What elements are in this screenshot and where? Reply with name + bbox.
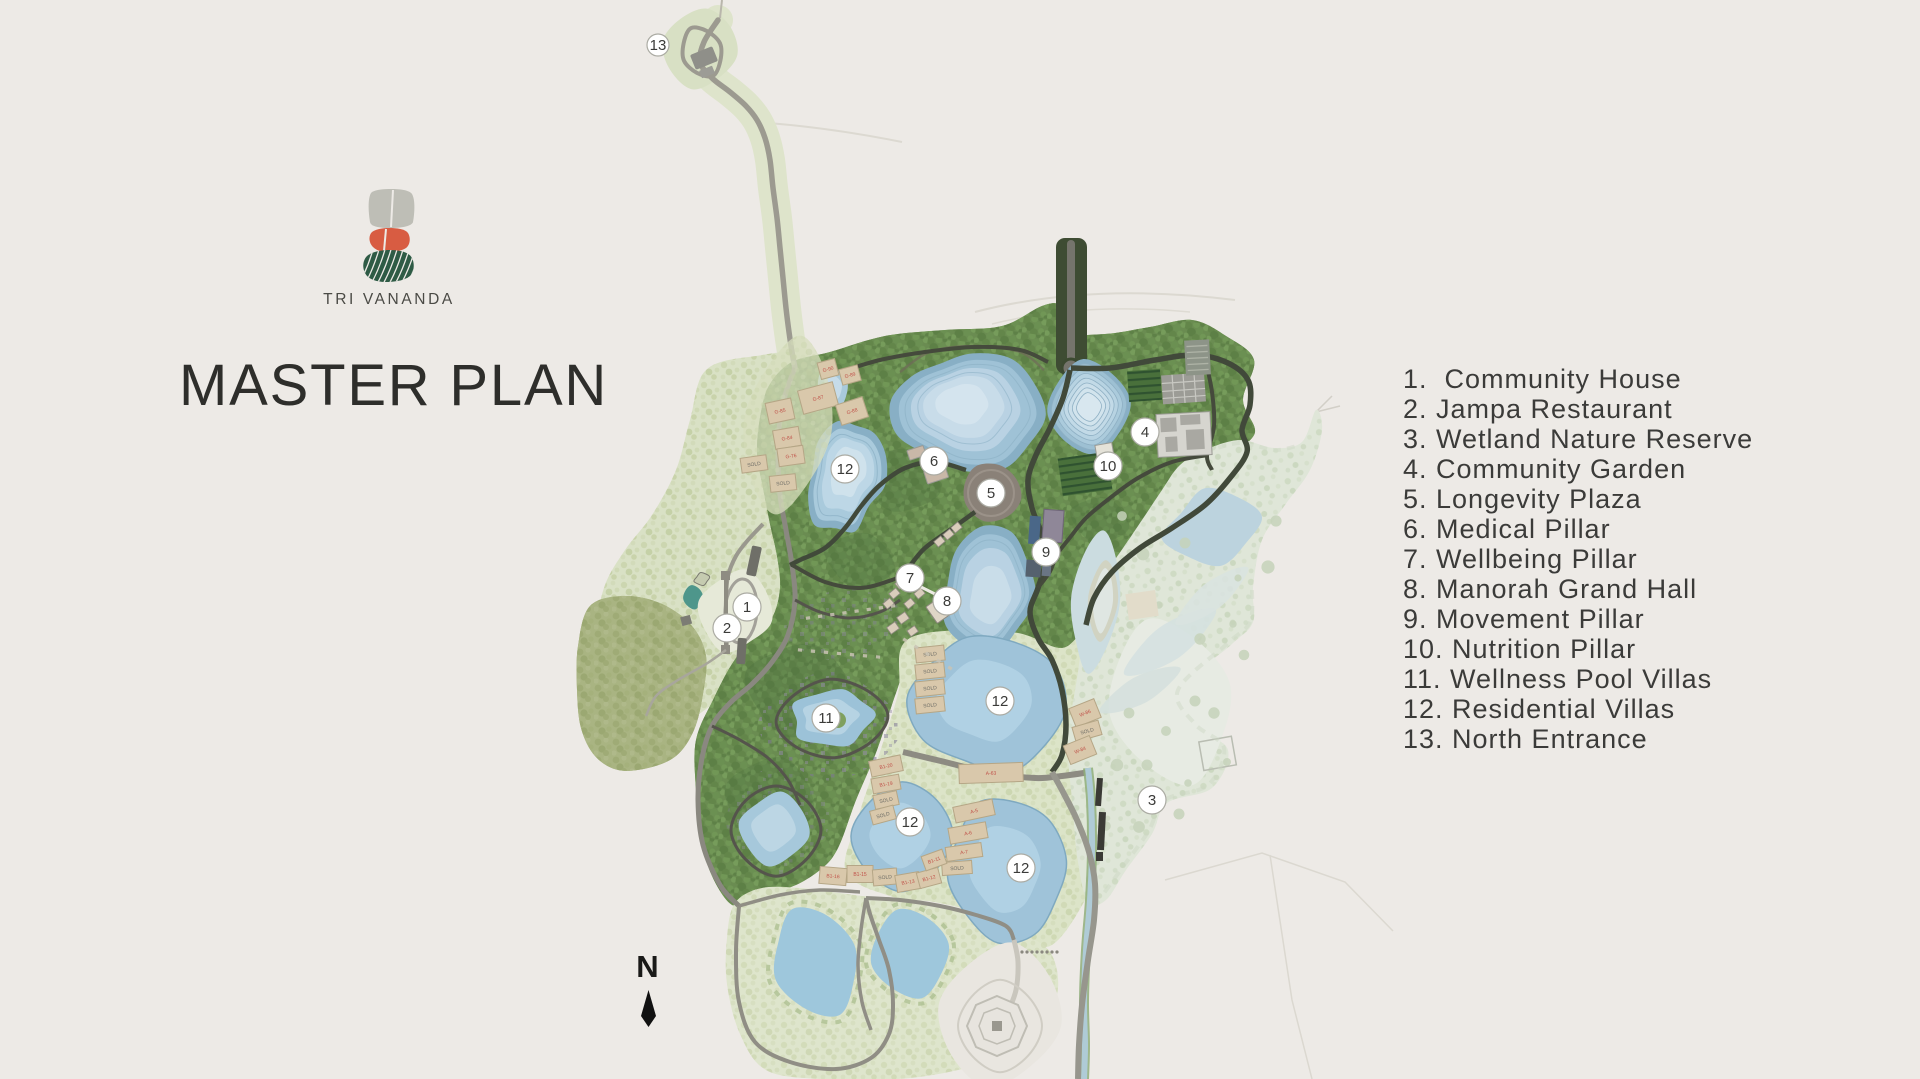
svg-text:3: 3 — [1148, 792, 1156, 809]
svg-text:10: 10 — [1100, 458, 1117, 475]
svg-text:N: N — [636, 949, 658, 984]
svg-text:7. Wellbeing Pillar: 7. Wellbeing Pillar — [1403, 544, 1638, 574]
svg-text:9. Movement Pillar: 9. Movement Pillar — [1403, 604, 1645, 634]
svg-text:10. Nutrition Pillar: 10. Nutrition Pillar — [1403, 634, 1636, 664]
svg-text:MASTER PLAN: MASTER PLAN — [179, 353, 608, 418]
svg-text:A-63: A-63 — [986, 771, 997, 777]
svg-text:B1-15: B1-15 — [853, 872, 867, 878]
svg-text:12: 12 — [992, 693, 1009, 710]
svg-text:7: 7 — [906, 570, 914, 587]
svg-text:2. Jampa Restaurant: 2. Jampa Restaurant — [1403, 394, 1673, 424]
svg-text:4. Community Garden: 4. Community Garden — [1403, 454, 1686, 484]
svg-text:6: 6 — [930, 453, 938, 470]
svg-text:SOLD: SOLD — [950, 865, 964, 872]
svg-text:2: 2 — [723, 620, 731, 637]
svg-text:8: 8 — [943, 593, 951, 610]
svg-text:11. Wellness Pool Villas: 11. Wellness Pool Villas — [1403, 664, 1712, 694]
svg-text:11: 11 — [818, 710, 834, 727]
svg-text:9: 9 — [1042, 544, 1050, 561]
svg-text:A-7: A-7 — [960, 849, 969, 856]
svg-text:B1-16: B1-16 — [826, 873, 840, 880]
svg-text:12: 12 — [1013, 860, 1030, 877]
svg-text:5. Longevity Plaza: 5. Longevity Plaza — [1403, 484, 1642, 514]
svg-text:12. Residential Villas: 12. Residential Villas — [1403, 694, 1675, 724]
svg-text:4: 4 — [1141, 424, 1149, 441]
svg-text:13: 13 — [650, 37, 667, 54]
svg-text:8. Manorah Grand Hall: 8. Manorah Grand Hall — [1403, 574, 1697, 604]
svg-text:5: 5 — [987, 485, 995, 502]
svg-text:TRI VANANDA: TRI VANANDA — [323, 291, 455, 308]
svg-text:12: 12 — [902, 814, 919, 831]
svg-text:6. Medical Pillar: 6. Medical Pillar — [1403, 514, 1611, 544]
svg-text:3. Wetland Nature Reserve: 3. Wetland Nature Reserve — [1403, 424, 1753, 454]
svg-text:13. North Entrance: 13. North Entrance — [1403, 724, 1648, 754]
svg-text:SOLD: SOLD — [878, 874, 892, 881]
svg-text:1. Community House: 1. Community House — [1403, 364, 1682, 394]
svg-text:1: 1 — [743, 599, 751, 616]
svg-text:12: 12 — [837, 461, 854, 478]
